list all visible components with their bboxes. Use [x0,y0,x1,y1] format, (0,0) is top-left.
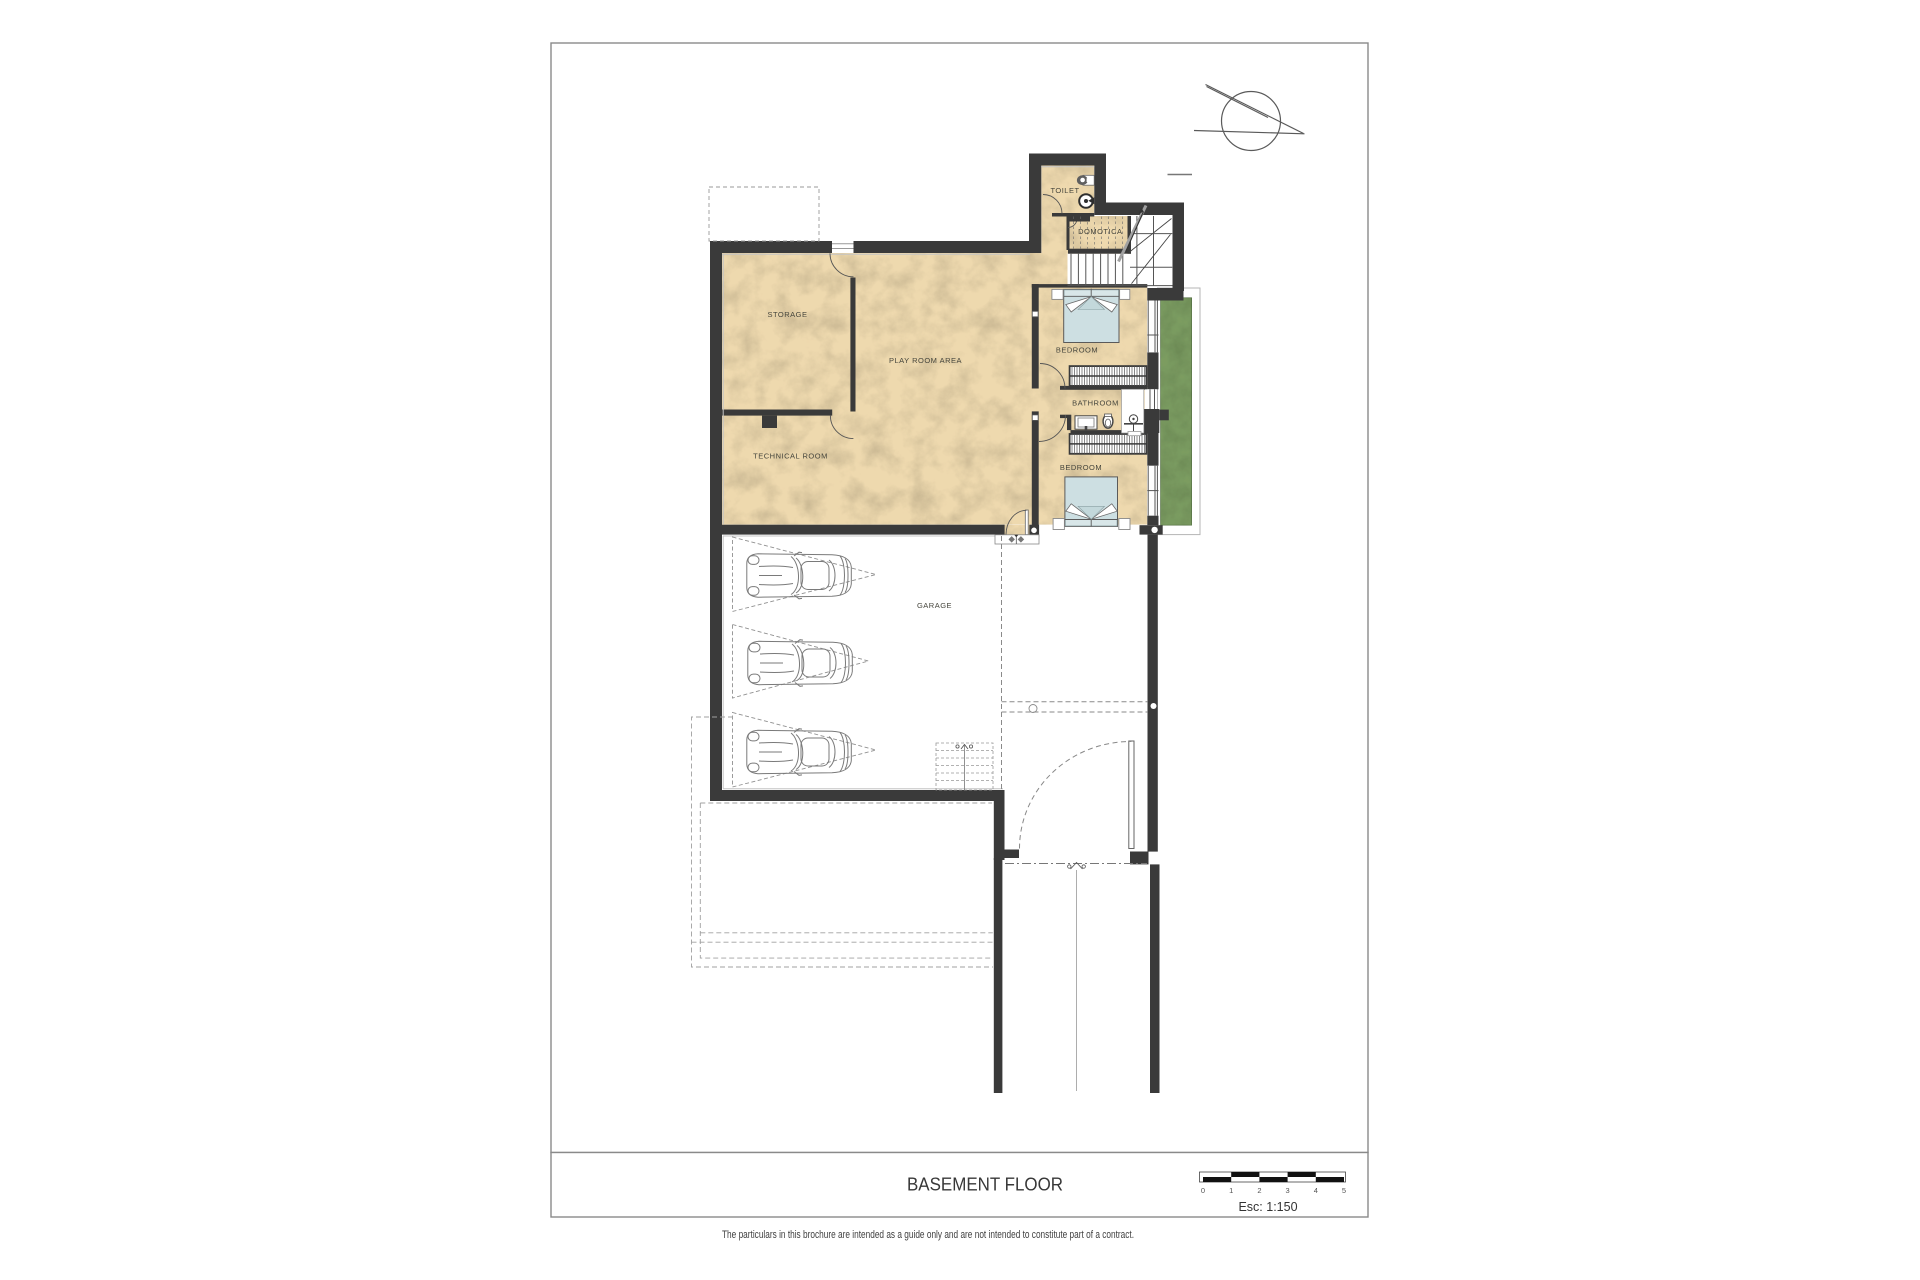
svg-text:0: 0 [1201,1186,1205,1195]
svg-text:BEDROOM: BEDROOM [1060,463,1102,472]
svg-text:PLAY ROOM AREA: PLAY ROOM AREA [889,356,962,365]
svg-text:BEDROOM: BEDROOM [1056,346,1098,355]
svg-text:The particulars in this brochu: The particulars in this brochure are int… [722,1229,1134,1241]
svg-text:2: 2 [1257,1186,1261,1195]
svg-text:TOILET: TOILET [1050,186,1079,195]
svg-text:5: 5 [1342,1186,1346,1195]
svg-text:1: 1 [1229,1186,1233,1195]
svg-text:4: 4 [1314,1186,1318,1195]
svg-text:3: 3 [1286,1186,1290,1195]
svg-text:STORAGE: STORAGE [767,310,807,319]
svg-text:Esc: 1:150: Esc: 1:150 [1238,1200,1297,1214]
svg-text:BATHROOM: BATHROOM [1072,399,1119,408]
svg-text:BASEMENT FLOOR: BASEMENT FLOOR [907,1174,1063,1195]
svg-text:DOMOTICA: DOMOTICA [1078,227,1122,236]
svg-text:TECHNICAL ROOM: TECHNICAL ROOM [753,452,828,461]
svg-text:GARAGE: GARAGE [917,601,952,610]
